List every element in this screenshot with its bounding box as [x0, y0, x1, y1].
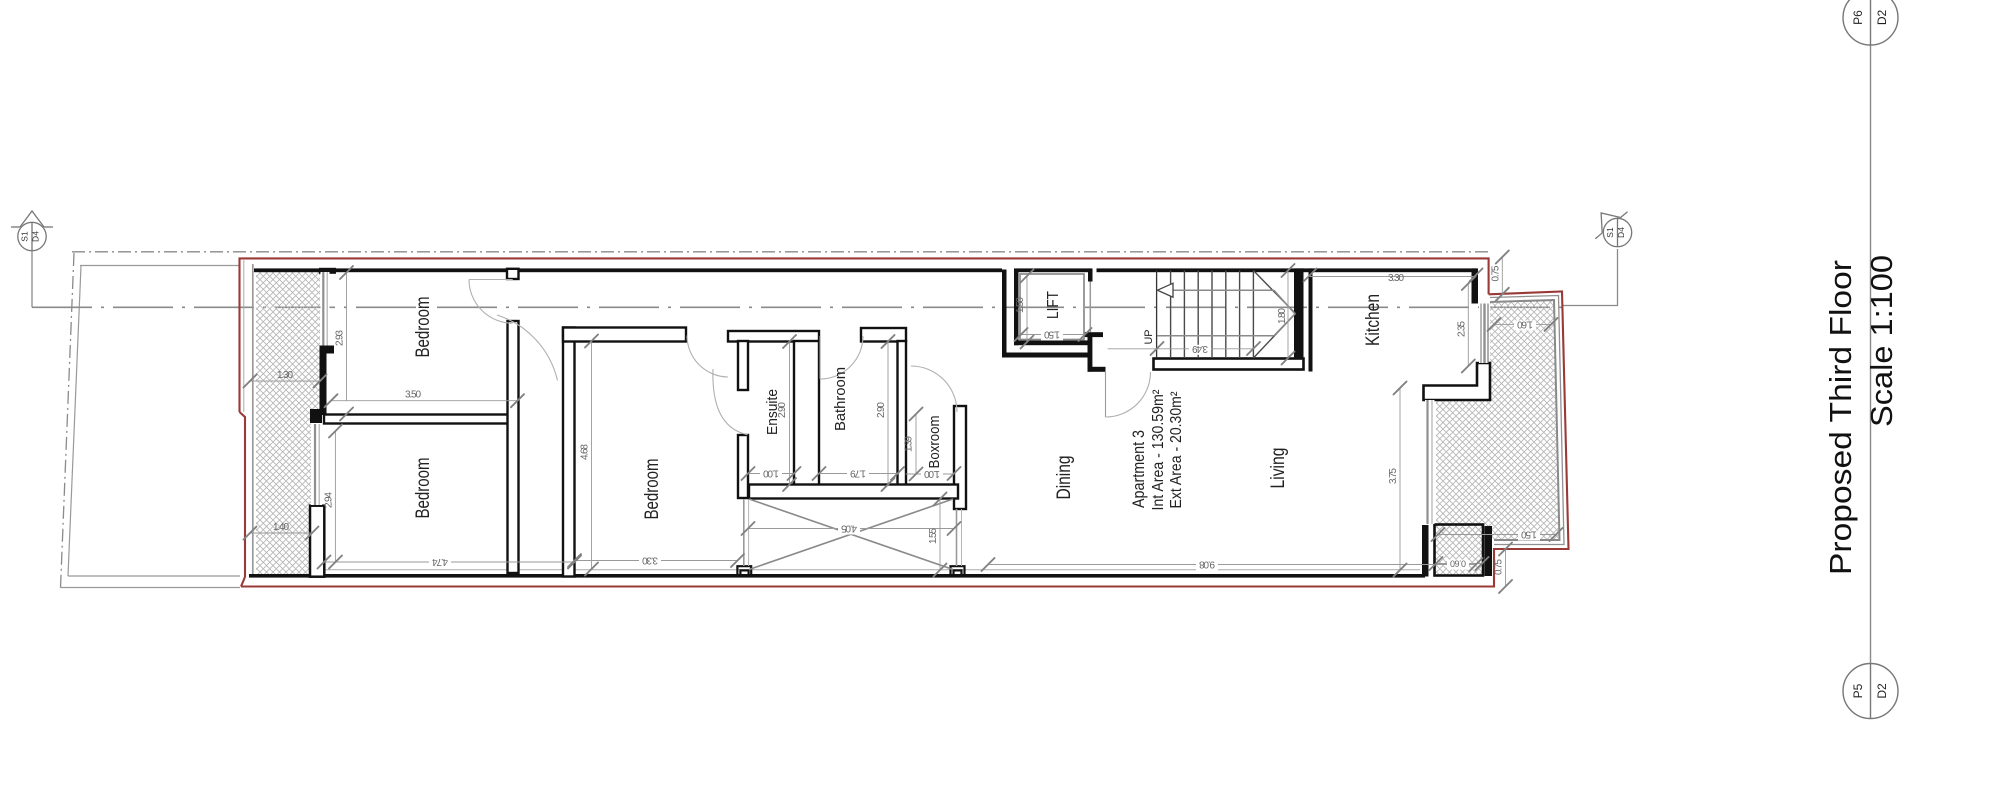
- svg-text:1.00: 1.00: [763, 468, 779, 479]
- svg-text:3.50: 3.50: [405, 390, 421, 401]
- svg-text:2.35: 2.35: [1456, 321, 1467, 337]
- svg-text:Scale 1:100: Scale 1:100: [1864, 255, 1899, 427]
- svg-text:D2: D2: [1875, 683, 1889, 699]
- svg-text:1.50: 1.50: [1521, 529, 1537, 540]
- svg-text:Living: Living: [1268, 448, 1289, 489]
- svg-text:3.30: 3.30: [1388, 273, 1404, 284]
- svg-text:S1: S1: [1605, 227, 1615, 238]
- svg-text:1.40: 1.40: [273, 522, 289, 533]
- svg-text:UP: UP: [1143, 330, 1155, 345]
- svg-text:Dining: Dining: [1054, 456, 1075, 500]
- svg-text:LIFT: LIFT: [1045, 291, 1062, 319]
- svg-text:1.30: 1.30: [277, 370, 293, 381]
- svg-text:2.90: 2.90: [876, 402, 887, 418]
- svg-text:4.68: 4.68: [580, 444, 591, 460]
- svg-text:1.55: 1.55: [928, 528, 939, 544]
- svg-text:Int Area - 130.59m²: Int Area - 130.59m²: [1150, 390, 1167, 511]
- svg-text:0.75: 0.75: [1491, 265, 1502, 281]
- svg-text:Boxroom: Boxroom: [926, 416, 943, 469]
- svg-text:2.93: 2.93: [335, 330, 346, 346]
- svg-text:S1: S1: [20, 231, 30, 242]
- svg-text:1.00: 1.00: [924, 468, 940, 479]
- svg-text:Bedroom: Bedroom: [413, 458, 434, 519]
- svg-text:2.94: 2.94: [324, 492, 335, 508]
- svg-text:Bedroom: Bedroom: [413, 297, 434, 358]
- svg-text:Bedroom: Bedroom: [642, 459, 663, 520]
- svg-text:1.60: 1.60: [1517, 319, 1533, 330]
- svg-text:4.05: 4.05: [841, 523, 857, 534]
- svg-text:D4: D4: [1616, 227, 1626, 238]
- svg-text:Bathroom: Bathroom: [832, 367, 849, 431]
- svg-text:0.60: 0.60: [1450, 559, 1466, 569]
- svg-text:4.74: 4.74: [432, 556, 448, 567]
- svg-text:Kitchen: Kitchen: [1363, 294, 1384, 346]
- svg-text:P5: P5: [1851, 683, 1865, 698]
- svg-text:Apartment 3: Apartment 3: [1129, 430, 1148, 508]
- svg-text:1.79: 1.79: [850, 468, 866, 479]
- svg-text:1.50: 1.50: [1015, 297, 1026, 313]
- svg-text:3.75: 3.75: [1388, 468, 1399, 484]
- svg-text:Proposed Third Floor: Proposed Third Floor: [1823, 260, 1858, 575]
- svg-text:3.49: 3.49: [1192, 343, 1208, 354]
- svg-text:Ext Area - 20.30m²: Ext Area - 20.30m²: [1168, 392, 1185, 509]
- svg-text:P6: P6: [1851, 10, 1865, 25]
- svg-text:3.30: 3.30: [642, 555, 658, 566]
- svg-text:1.80: 1.80: [1277, 308, 1288, 324]
- svg-text:9.08: 9.08: [1199, 559, 1215, 570]
- svg-text:D4: D4: [31, 231, 41, 242]
- svg-text:1.50: 1.50: [1044, 329, 1060, 340]
- svg-text:D2: D2: [1875, 10, 1889, 26]
- svg-text:1.39: 1.39: [904, 436, 915, 452]
- svg-text:0.75: 0.75: [1494, 559, 1505, 575]
- svg-text:Ensuite: Ensuite: [764, 389, 781, 435]
